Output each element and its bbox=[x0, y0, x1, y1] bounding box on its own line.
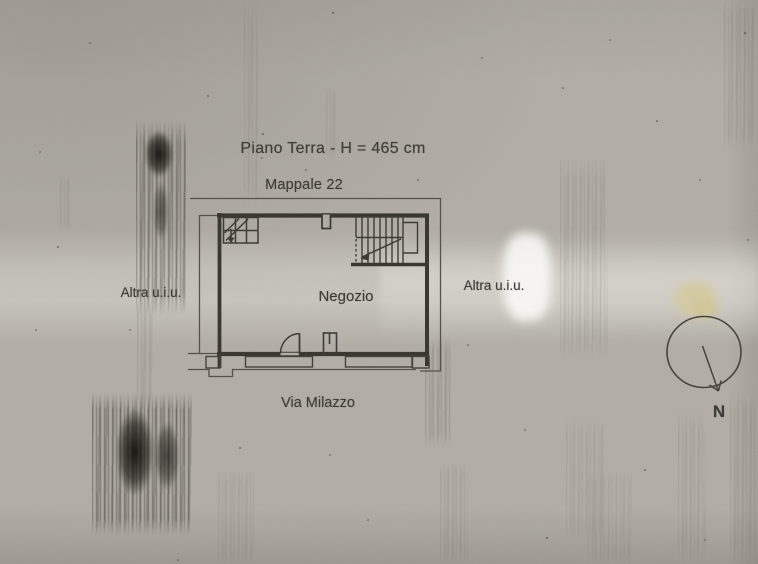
paper-texture bbox=[0, 0, 758, 564]
scanned-floorplan-photo: Piano Terra - H = 465 cm Mappale 22 Altr… bbox=[0, 0, 758, 564]
